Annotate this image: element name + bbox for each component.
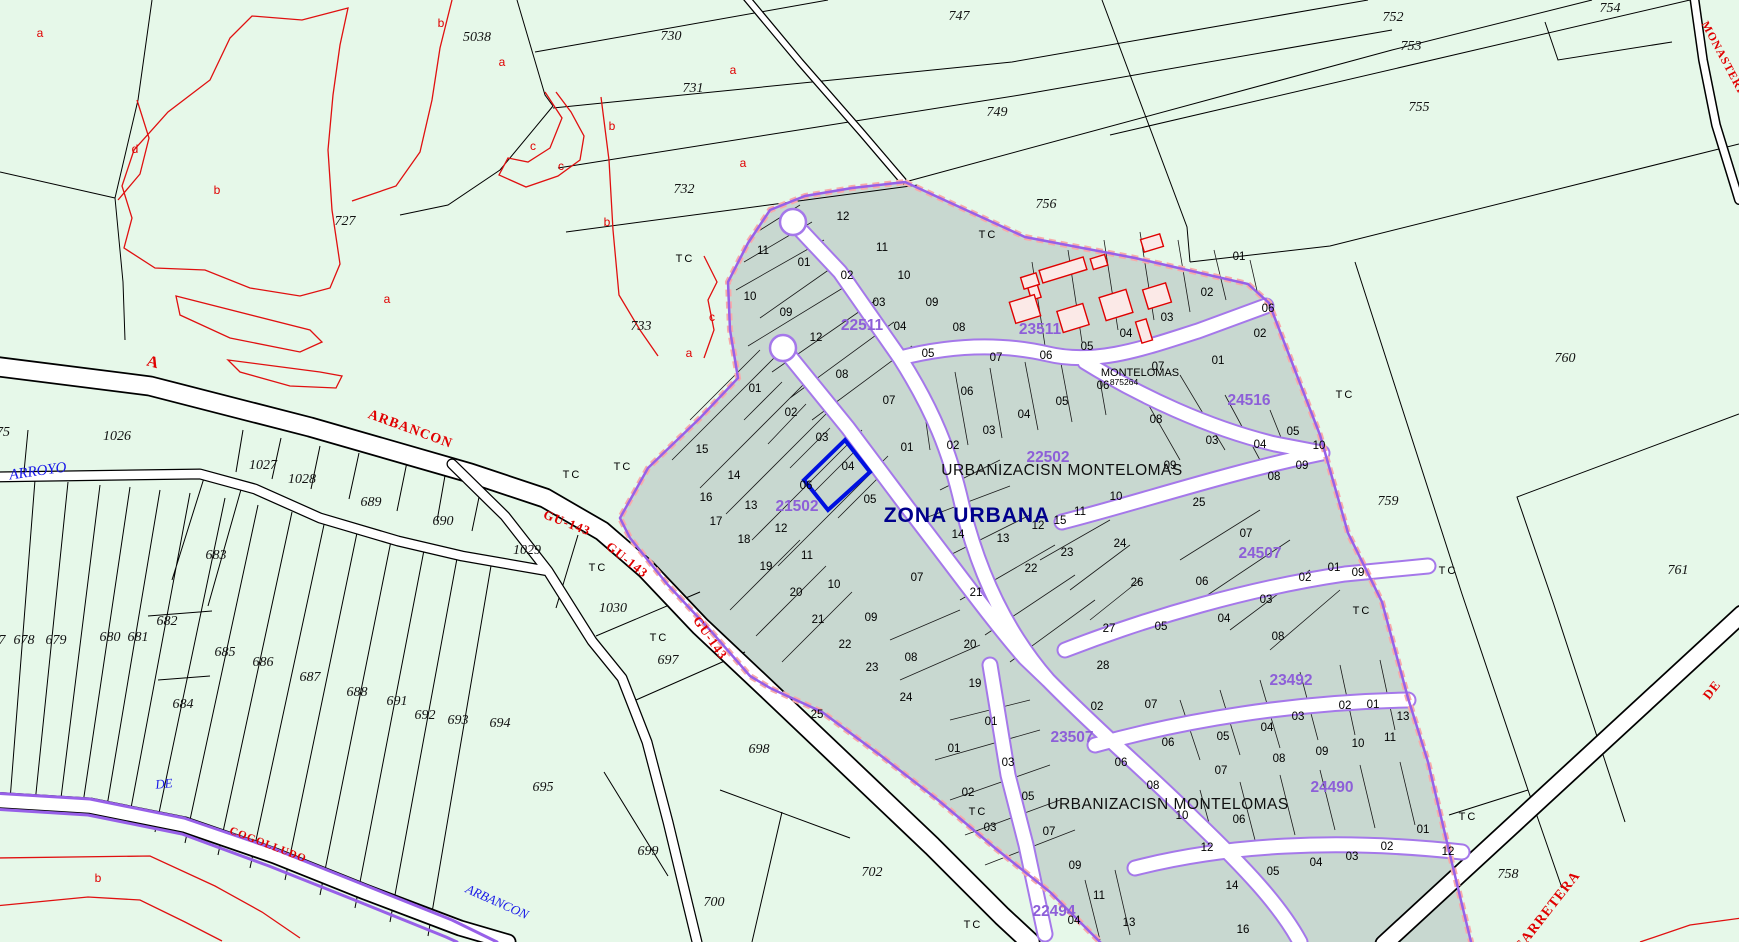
urban-parcel-number: 11 — [876, 242, 888, 254]
cadastral-ref-label: 24516 — [1227, 392, 1270, 410]
urban-parcel-number: 07 — [1215, 765, 1228, 777]
rural-parcel-number: 75 — [0, 425, 10, 441]
zona-urbana-label: ZONA URBANA — [884, 504, 1051, 528]
rural-parcel-number: 687 — [300, 670, 321, 686]
tc-marker: TC — [964, 919, 983, 931]
urban-parcel-number: 06 — [1115, 757, 1128, 769]
rural-parcel-number: 5038 — [463, 30, 491, 46]
subparcel-letter: b — [95, 871, 102, 885]
urban-parcel-number: 04 — [894, 321, 907, 333]
rural-parcel-number: 683 — [206, 548, 227, 564]
urban-parcel-number: 01 — [798, 257, 811, 269]
urban-parcel-number: 02 — [962, 787, 975, 799]
urban-parcel-number: 02 — [1381, 841, 1394, 853]
urban-parcel-number: 03 — [1206, 435, 1219, 447]
subparcel-letter: b — [438, 16, 445, 30]
urban-parcel-number: 11 — [1093, 890, 1105, 902]
urban-parcel-number: 12 — [837, 211, 850, 223]
urban-parcel-number: 07 — [1145, 699, 1158, 711]
tc-marker: TC — [563, 469, 582, 481]
urban-parcel-number: 13 — [997, 533, 1010, 545]
rural-parcel-number: 692 — [415, 708, 436, 724]
urban-parcel-number: 20 — [790, 587, 803, 599]
road-label: COGOLLUDO — [228, 825, 309, 865]
tc-marker: TC — [1336, 389, 1355, 401]
subparcel-letter: c — [530, 139, 536, 153]
rural-parcel-number: 760 — [1555, 351, 1576, 367]
cadastral-ref-label: 24490 — [1310, 779, 1353, 797]
rural-parcel-number: 747 — [949, 9, 970, 25]
hydro-label: ARBANCON — [463, 881, 531, 923]
tc-marker: TC — [676, 253, 695, 265]
rural-parcel-number: 749 — [987, 105, 1008, 121]
urban-parcel-number: 21 — [970, 587, 983, 599]
rural-parcel-number: 758 — [1498, 867, 1519, 883]
urban-parcel-number: 07 — [1240, 528, 1253, 540]
road-label: ARBANCON — [365, 407, 454, 452]
urban-parcel-number: 08 — [1147, 780, 1160, 792]
cadastral-ref-label: 23511 — [1019, 321, 1061, 339]
rural-parcel-number: 684 — [173, 697, 194, 713]
rural-parcel-number: 680 — [100, 630, 121, 646]
rural-parcel-number: 756 — [1036, 197, 1057, 213]
subparcel-letter: a — [37, 26, 44, 40]
subparcel-letter: b — [214, 183, 221, 197]
urban-parcel-number: 08 — [836, 369, 849, 381]
urban-parcel-number: 13 — [1123, 917, 1136, 929]
urban-parcel-number: 16 — [700, 492, 713, 504]
rural-parcel-number: 1030 — [599, 601, 627, 617]
urban-parcel-number: 18 — [738, 534, 751, 546]
urban-parcel-number: 09 — [780, 307, 793, 319]
urban-parcel-number: 22 — [839, 639, 852, 651]
cadastral-ref-label: 23492 — [1269, 672, 1312, 690]
rural-parcel-number: 1029 — [513, 543, 541, 559]
cadastral-ref-label: 21502 — [775, 498, 818, 516]
rural-parcel-number: 702 — [862, 865, 883, 881]
urban-parcel-number: 02 — [785, 407, 798, 419]
urban-parcel-number: 09 — [1296, 460, 1309, 472]
rural-parcel-number: 752 — [1383, 10, 1404, 26]
rural-parcel-number: 678 — [14, 633, 35, 649]
urbanization-label: URBANIZACISN MONTELOMAS — [941, 462, 1182, 480]
urban-parcel-number: 01 — [948, 743, 961, 755]
urban-parcel-number: 15 — [1054, 515, 1067, 527]
rural-parcel-number: 679 — [46, 633, 67, 649]
rural-parcel-number: 1027 — [249, 458, 277, 474]
urban-parcel-number: 01 — [1212, 355, 1225, 367]
urban-parcel-number: 05 — [1155, 621, 1168, 633]
tc-marker: TC — [1459, 811, 1478, 823]
rural-parcel-number: 694 — [490, 716, 511, 732]
urban-parcel-number: 08 — [1272, 631, 1285, 643]
hydro-label: ARROYO — [8, 460, 67, 485]
urban-parcel-number: 05 — [1267, 866, 1280, 878]
urban-parcel-number: 04 — [1261, 722, 1274, 734]
subparcel-letter: a — [730, 63, 737, 77]
urban-parcel-number: 10 — [1352, 738, 1365, 750]
urban-parcel-number: 13 — [1397, 711, 1410, 723]
hydro-label: DE — [155, 775, 174, 792]
rural-parcel-number: 685 — [215, 645, 236, 661]
rural-parcel-number: 695 — [533, 780, 554, 796]
urban-parcel-number: 23 — [866, 662, 879, 674]
road-label: GU-143 — [541, 507, 593, 540]
rural-parcel-number: 689 — [361, 495, 382, 511]
road-label: GU-143 — [603, 539, 652, 582]
urban-parcel-number: 04 — [1120, 328, 1133, 340]
cadastral-ref-label: 23507 — [1050, 729, 1093, 747]
urban-parcel-number: 11 — [1074, 506, 1086, 518]
urban-parcel-number: 03 — [984, 822, 997, 834]
tc-marker: TC — [969, 806, 988, 818]
subparcel-letter: a — [686, 346, 693, 360]
urbanization-label: URBANIZACISN MONTELOMAS — [1047, 796, 1288, 814]
urban-parcel-number: 26 — [1131, 577, 1144, 589]
urban-parcel-number: 10 — [828, 579, 841, 591]
urban-parcel-number: 02 — [841, 270, 854, 282]
urban-parcel-number: 01 — [1233, 251, 1246, 263]
cadastral-ref-label: 24507 — [1238, 545, 1281, 563]
subparcel-letter: a — [499, 55, 506, 69]
rural-parcel-number: 732 — [674, 182, 695, 198]
urban-parcel-number: 03 — [873, 297, 886, 309]
urban-parcel-number: 01 — [1417, 824, 1430, 836]
montelomas-label: 875264 — [1110, 377, 1138, 387]
road-label: MONASTERIO — [1699, 20, 1739, 105]
urban-parcel-number: 09 — [1352, 567, 1365, 579]
urban-parcel-number: 09 — [926, 297, 939, 309]
urban-parcel-number: 05 — [1056, 396, 1069, 408]
urban-parcel-number: 22 — [1025, 563, 1038, 575]
urban-parcel-number: 10 — [1313, 440, 1326, 452]
subparcel-letter: a — [740, 156, 747, 170]
road-label: DE — [1700, 677, 1725, 703]
rural-parcel-number: 759 — [1378, 494, 1399, 510]
rural-parcel-number: 761 — [1668, 563, 1689, 579]
urban-parcel-number: 21 — [812, 614, 825, 626]
urban-parcel-number: 11 — [801, 550, 813, 562]
urban-parcel-number: 01 — [749, 383, 762, 395]
urban-parcel-number: 06 — [1196, 576, 1209, 588]
rural-parcel-number: 7 — [0, 633, 6, 649]
rural-parcel-number: 681 — [128, 630, 149, 646]
urban-parcel-number: 04 — [1310, 857, 1323, 869]
rural-parcel-number: 693 — [448, 713, 469, 729]
urban-parcel-number: 05 — [864, 494, 877, 506]
rural-parcel-number: 727 — [335, 214, 356, 230]
urban-parcel-number: 04 — [1254, 439, 1267, 451]
urban-parcel-number: 01 — [985, 716, 998, 728]
urban-parcel-number: 09 — [1069, 860, 1082, 872]
urban-parcel-number: 06 — [1262, 303, 1275, 315]
urban-parcel-number: 03 — [816, 432, 829, 444]
urban-parcel-number: 09 — [1316, 746, 1329, 758]
urban-parcel-number: 12 — [1201, 842, 1214, 854]
subparcel-letter: c — [558, 159, 564, 173]
tc-marker: TC — [589, 562, 608, 574]
urban-parcel-number: 06 — [1162, 737, 1175, 749]
urban-parcel-number: 02 — [1201, 287, 1214, 299]
urban-parcel-number: 02 — [1339, 700, 1352, 712]
rural-parcel-number: 699 — [638, 844, 659, 860]
urban-parcel-number: 12 — [775, 523, 788, 535]
urban-parcel-number: 25 — [1193, 497, 1206, 509]
urban-parcel-number: 10 — [744, 291, 757, 303]
urban-parcel-number: 05 — [1287, 426, 1300, 438]
urban-parcel-number: 10 — [1110, 491, 1123, 503]
urban-parcel-number: 07 — [990, 352, 1003, 364]
tc-marker: TC — [1353, 605, 1372, 617]
urban-parcel-number: 05 — [1081, 341, 1094, 353]
urban-parcel-number: 19 — [969, 678, 982, 690]
cadastral-map-viewport[interactable]: 5038727730731732733747749756752753754755… — [0, 0, 1739, 942]
urban-parcel-number: 24 — [1114, 538, 1127, 550]
urban-parcel-number: 02 — [1091, 701, 1104, 713]
tc-marker: TC — [979, 229, 998, 241]
rural-parcel-number: 753 — [1401, 39, 1422, 55]
urban-parcel-number: 20 — [964, 639, 977, 651]
subparcel-letter: c — [709, 310, 715, 324]
urban-parcel-number: 08 — [1273, 753, 1286, 765]
urban-parcel-number: 07 — [883, 395, 896, 407]
tc-marker: TC — [614, 461, 633, 473]
urban-parcel-number: 10 — [898, 270, 911, 282]
rural-parcel-number: 755 — [1409, 100, 1430, 116]
urban-parcel-number: 25 — [811, 709, 824, 721]
urban-parcel-number: 12 — [1442, 846, 1455, 858]
urban-parcel-number: 06 — [1040, 350, 1053, 362]
rural-parcel-number: 733 — [631, 319, 652, 335]
subparcel-letter: b — [604, 215, 611, 229]
urban-parcel-number: 08 — [1150, 414, 1163, 426]
urban-parcel-number: 23 — [1061, 547, 1074, 559]
urban-parcel-number: 16 — [1237, 924, 1250, 936]
urban-parcel-number: 04 — [842, 461, 855, 473]
urban-parcel-number: 19 — [760, 561, 773, 573]
rural-parcel-number: 691 — [387, 694, 408, 710]
urban-parcel-number: 03 — [1002, 757, 1015, 769]
map-labels-layer: 5038727730731732733747749756752753754755… — [0, 0, 1739, 942]
tc-marker: TC — [1439, 565, 1458, 577]
rural-parcel-number: 690 — [433, 514, 454, 530]
subparcel-letter: b — [609, 119, 616, 133]
urban-parcel-number: 14 — [1226, 880, 1239, 892]
urban-parcel-number: 09 — [865, 612, 878, 624]
rural-parcel-number: 682 — [157, 614, 178, 630]
urban-parcel-number: 03 — [1292, 711, 1305, 723]
rural-parcel-number: 698 — [749, 742, 770, 758]
urban-parcel-number: 02 — [1299, 572, 1312, 584]
rural-parcel-number: 697 — [658, 653, 679, 669]
urban-parcel-number: 06 — [961, 386, 974, 398]
urban-parcel-number: 08 — [953, 322, 966, 334]
urban-parcel-number: 11 — [757, 245, 769, 257]
urban-parcel-number: 08 — [905, 652, 918, 664]
urban-parcel-number: 14 — [728, 470, 741, 482]
rural-parcel-number: 700 — [704, 895, 725, 911]
urban-parcel-number: 06 — [800, 480, 813, 492]
rural-parcel-number: 686 — [253, 655, 274, 671]
rural-parcel-number: 1026 — [103, 429, 131, 445]
urban-parcel-number: 15 — [696, 444, 709, 456]
rural-parcel-number: 1028 — [288, 472, 316, 488]
urban-parcel-number: 02 — [1254, 328, 1267, 340]
road-label: A — [145, 353, 162, 374]
urban-parcel-number: 08 — [1268, 471, 1281, 483]
urban-parcel-number: 12 — [810, 332, 823, 344]
urban-parcel-number: 02 — [947, 440, 960, 452]
urban-parcel-number: 01 — [901, 442, 914, 454]
urban-parcel-number: 03 — [983, 425, 996, 437]
urban-parcel-number: 03 — [1260, 594, 1273, 606]
urban-parcel-number: 01 — [1328, 562, 1341, 574]
road-label: CARRETERA — [1512, 869, 1585, 942]
cadastral-ref-label: 22511 — [841, 317, 883, 335]
urban-parcel-number: 17 — [710, 516, 723, 528]
urban-parcel-number: 04 — [1018, 409, 1031, 421]
urban-parcel-number: 01 — [1367, 699, 1380, 711]
urban-parcel-number: 07 — [1043, 826, 1056, 838]
cadastral-ref-label: 22494 — [1032, 903, 1075, 921]
urban-parcel-number: 05 — [1022, 791, 1035, 803]
rural-parcel-number: 731 — [683, 81, 704, 97]
urban-parcel-number: 07 — [911, 572, 924, 584]
urban-parcel-number: 05 — [1217, 731, 1230, 743]
urban-parcel-number: 13 — [745, 500, 758, 512]
urban-parcel-number: 04 — [1218, 613, 1231, 625]
subparcel-letter: d — [132, 142, 139, 156]
tc-marker: TC — [650, 632, 669, 644]
road-label: GU-143 — [689, 613, 730, 663]
urban-parcel-number: 28 — [1097, 660, 1110, 672]
rural-parcel-number: 754 — [1600, 1, 1621, 17]
subparcel-letter: a — [384, 292, 391, 306]
urban-parcel-number: 05 — [922, 348, 935, 360]
urban-parcel-number: 03 — [1161, 312, 1174, 324]
rural-parcel-number: 730 — [661, 29, 682, 45]
urban-parcel-number: 03 — [1346, 851, 1359, 863]
urban-parcel-number: 24 — [900, 692, 913, 704]
urban-parcel-number: 14 — [952, 529, 965, 541]
urban-parcel-number: 06 — [1233, 814, 1246, 826]
urban-parcel-number: 27 — [1103, 623, 1116, 635]
urban-parcel-number: 11 — [1384, 732, 1396, 744]
rural-parcel-number: 688 — [347, 685, 368, 701]
urban-parcel-number: 06 — [1097, 380, 1110, 392]
